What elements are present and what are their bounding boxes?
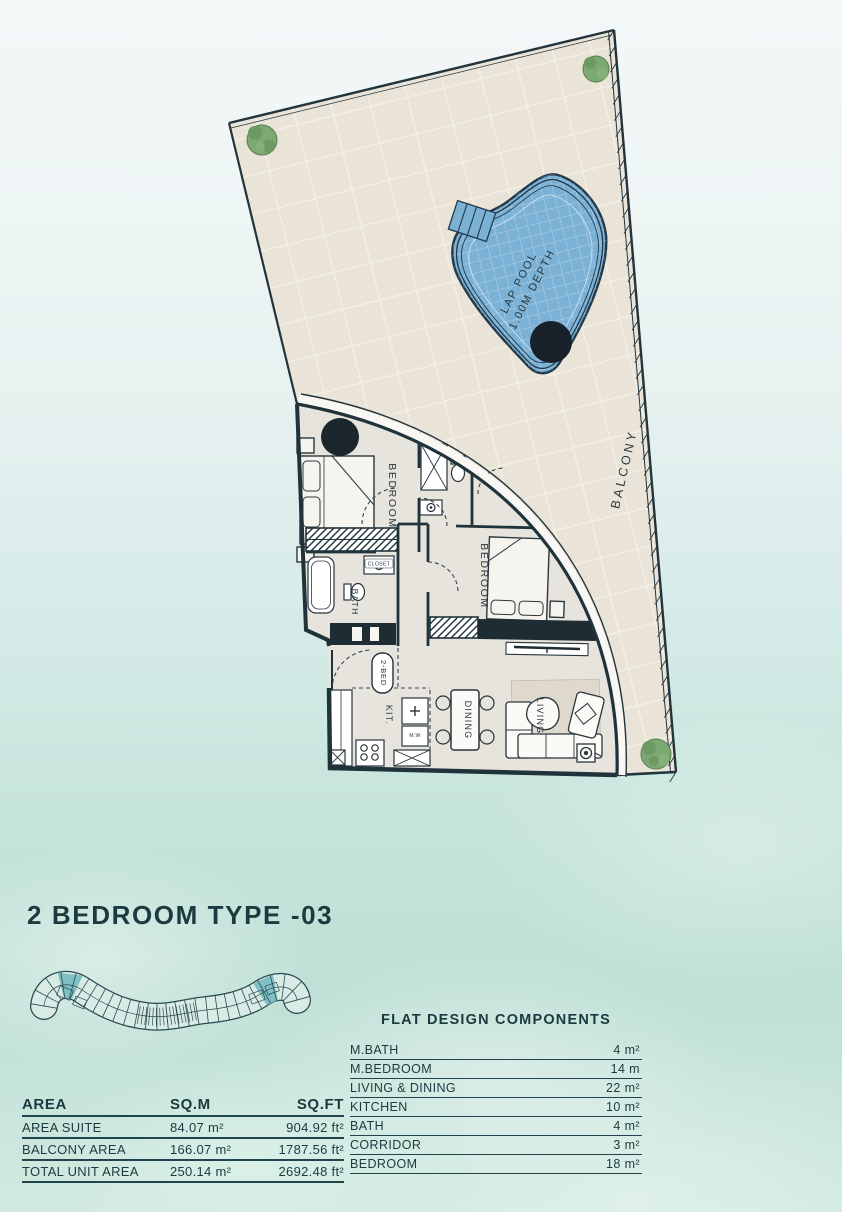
table-row: AREA SUITE 84.07 m² 904.92 ft² xyxy=(22,1117,344,1139)
brochure-page: LAP POOL 1.00M DEPTH xyxy=(0,0,842,1212)
planter-circle-icon xyxy=(530,321,572,363)
row-label: M.BATH xyxy=(350,1043,399,1057)
area-table-header: AREA SQ.M SQ.FT xyxy=(22,1093,344,1117)
components-table: FLAT DESIGN COMPONENTS M.BATH 4 m² M.BED… xyxy=(350,1012,642,1174)
row-sqft: 904.92 ft² xyxy=(264,1120,344,1135)
key-plan xyxy=(31,972,309,1030)
closet-tag: CLOSET xyxy=(365,559,393,568)
table-row: KITCHEN 10 m² xyxy=(350,1098,642,1117)
svg-text:2-BED: 2-BED xyxy=(379,660,388,686)
components-table-title: FLAT DESIGN COMPONENTS xyxy=(350,1012,642,1028)
bath-label: BATH xyxy=(350,589,360,616)
table-row: CORRIDOR 3 m² xyxy=(350,1136,642,1155)
row-sqm: 166.07 m² xyxy=(170,1142,264,1157)
row-value: 4 m² xyxy=(613,1043,640,1057)
table-row: LIVING & DINING 22 m² xyxy=(350,1079,642,1098)
svg-text:CLOSET: CLOSET xyxy=(368,562,390,568)
row-value: 4 m² xyxy=(613,1119,640,1133)
row-value: 18 m² xyxy=(606,1157,640,1171)
table-row: BALCONY AREA 166.07 m² 1787.56 ft² xyxy=(22,1139,344,1161)
living-label: LIVING xyxy=(535,698,545,735)
row-label: CORRIDOR xyxy=(350,1138,421,1152)
master-bedroom-label: BEDROOM xyxy=(386,463,398,528)
row-label: TOTAL UNIT AREA xyxy=(22,1164,170,1179)
table-row: BEDROOM 18 m² xyxy=(350,1155,642,1174)
area-table: AREA SQ.M SQ.FT AREA SUITE 84.07 m² 904.… xyxy=(22,1093,344,1183)
unit-tag: 2-BED xyxy=(372,653,393,693)
bedroom2-label: BEDROOM xyxy=(478,543,490,608)
table-row: BATH 4 m² xyxy=(350,1117,642,1136)
row-value: 14 m xyxy=(611,1062,640,1076)
row-label: KITCHEN xyxy=(350,1100,408,1114)
row-sqm: 84.07 m² xyxy=(170,1120,264,1135)
tree-icon xyxy=(247,125,277,155)
row-value: 22 m² xyxy=(606,1081,640,1095)
row-sqft: 2692.48 ft² xyxy=(264,1164,344,1179)
page-title: 2 BEDROOM TYPE -03 xyxy=(27,900,333,931)
tree-icon xyxy=(641,739,671,769)
row-label: AREA SUITE xyxy=(22,1120,170,1135)
row-label: LIVING & DINING xyxy=(350,1081,456,1095)
planter-circle-icon xyxy=(321,418,359,456)
row-value: 10 m² xyxy=(606,1100,640,1114)
row-sqft: 1787.56 ft² xyxy=(264,1142,344,1157)
utility-shaft xyxy=(330,623,396,645)
area-table-header-cell: AREA xyxy=(22,1096,170,1113)
table-row: M.BATH 4 m² xyxy=(350,1041,642,1060)
tree-icon xyxy=(583,56,609,82)
dining-label: DINING xyxy=(463,701,473,740)
row-value: 3 m² xyxy=(613,1138,640,1152)
row-label: BALCONY AREA xyxy=(22,1142,170,1157)
table-row: TOTAL UNIT AREA 250.14 m² 2692.48 ft² xyxy=(22,1161,344,1183)
row-label: BATH xyxy=(350,1119,384,1133)
kitchen-label: KIT. xyxy=(384,705,394,725)
tv-console xyxy=(506,642,588,655)
row-label: M.BEDROOM xyxy=(350,1062,432,1076)
row-label: BEDROOM xyxy=(350,1157,417,1171)
row-sqm: 250.14 m² xyxy=(170,1164,264,1179)
microwave-label: M.W xyxy=(409,733,420,739)
table-row: M.BEDROOM 14 m xyxy=(350,1060,642,1079)
area-table-header-cell: SQ.FT xyxy=(264,1096,344,1113)
tv-wall xyxy=(478,619,596,641)
area-table-header-cell: SQ.M xyxy=(170,1096,264,1113)
